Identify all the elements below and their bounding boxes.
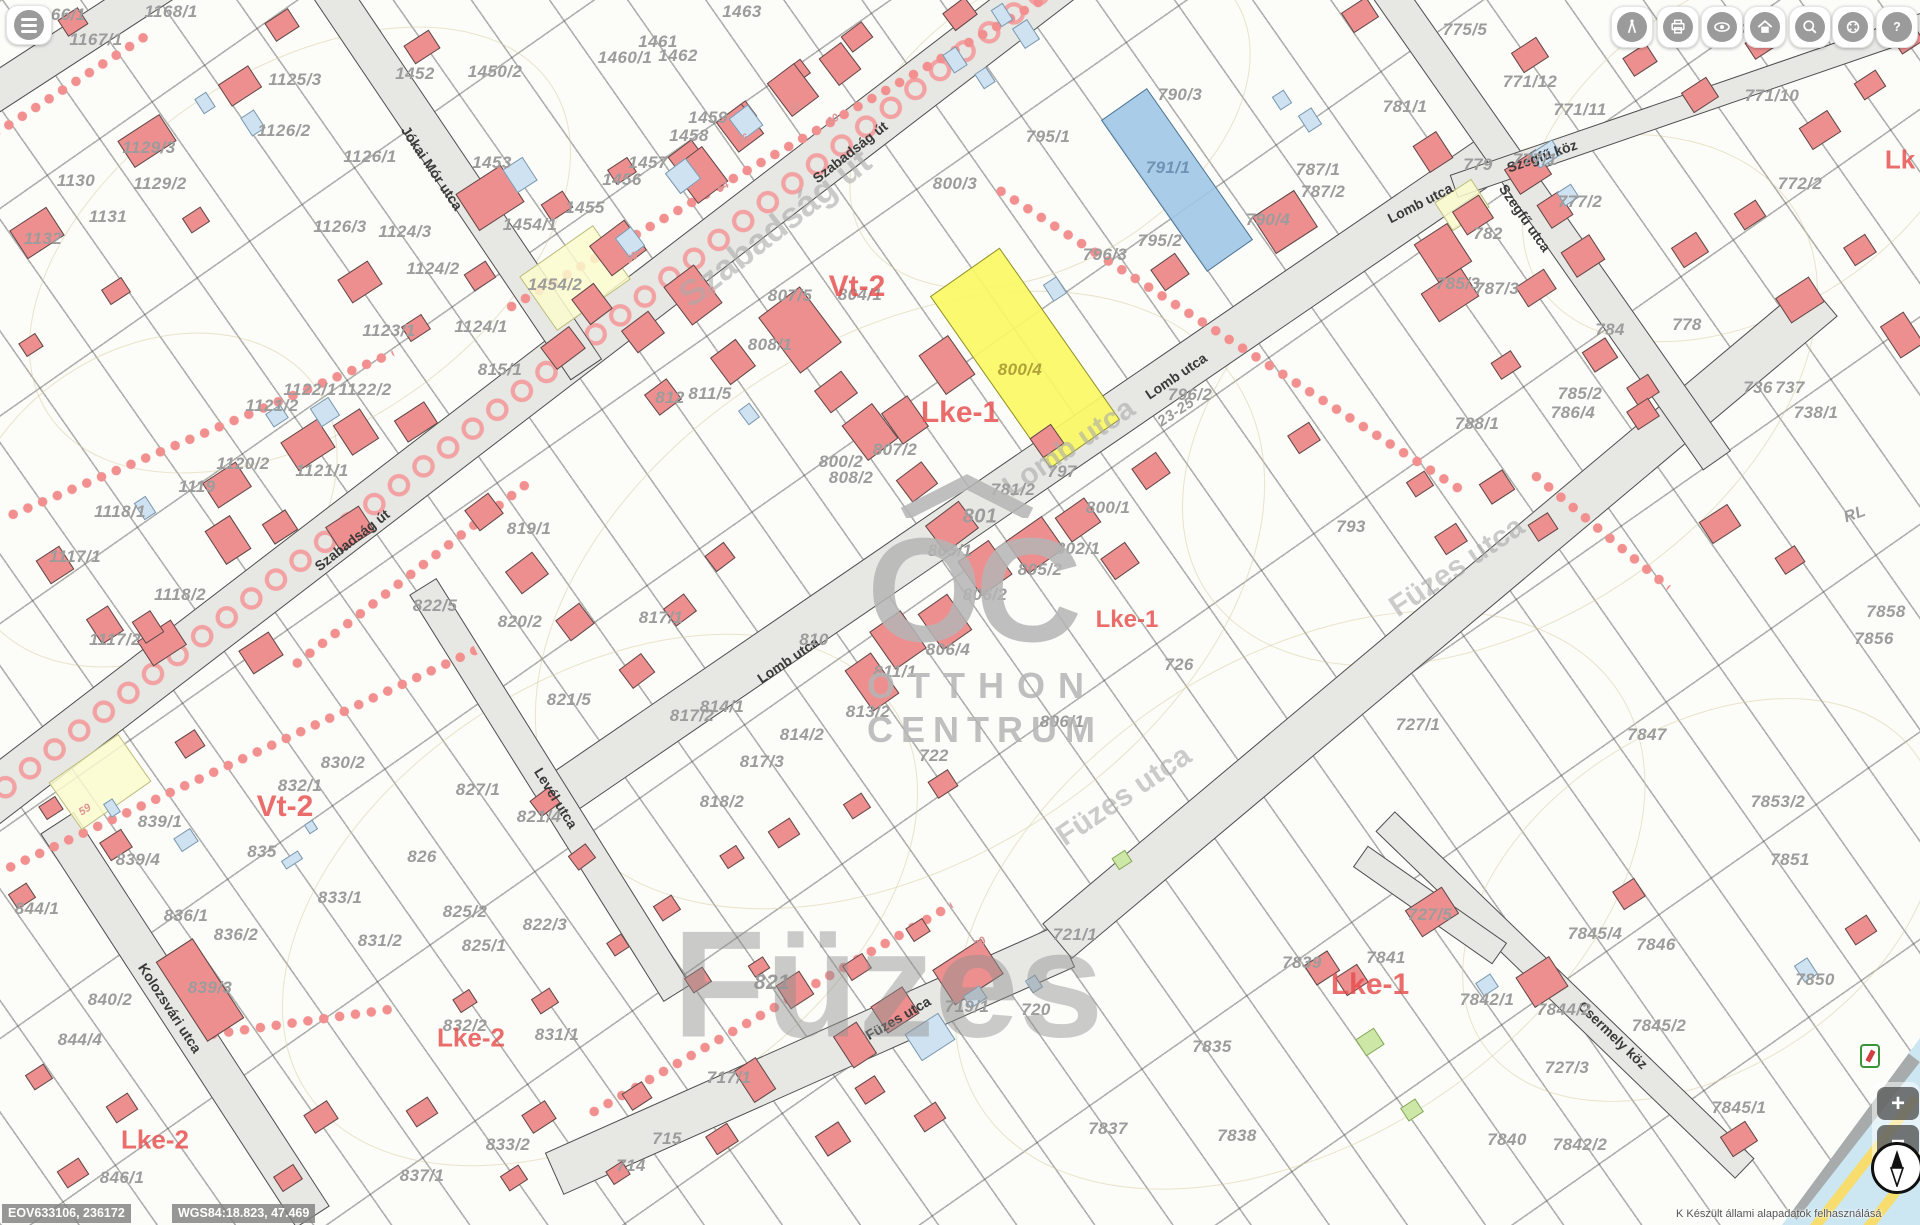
parcel-number: 781/2 (991, 480, 1036, 500)
view-button[interactable] (1701, 6, 1743, 48)
parcel-number: 825/2 (443, 902, 488, 922)
zoning-code-label: Lke-1 (1096, 606, 1159, 634)
menu-button[interactable] (6, 5, 52, 45)
parcel-number: 822/3 (523, 915, 568, 935)
wgs-coordinates: WGS84:18.823, 47.469 (172, 1204, 315, 1223)
parcel-number: 7845/2 (1632, 1016, 1686, 1036)
parcel-number: 1126/3 (313, 217, 366, 237)
building (1341, 0, 1379, 33)
zoning-code-label: Lke-1 (921, 396, 999, 430)
parcel-number: 726 (1164, 655, 1194, 675)
parcel-number: 785/2 (1558, 384, 1603, 404)
locate-button[interactable] (1832, 6, 1874, 48)
parcel-number: 7842/2 (1553, 1135, 1607, 1155)
basemap-logo-icon (1860, 1044, 1880, 1068)
parcel-number: 814/2 (780, 725, 825, 745)
parcel-number: 817/2 (670, 706, 715, 726)
parcel-number: 831/1 (535, 1025, 580, 1045)
parcel-number: 800/4 (998, 360, 1043, 380)
parcel-number: 1132 (24, 229, 62, 249)
parcel-number: 806/1 (1040, 712, 1085, 732)
parcel-number: 833/1 (318, 888, 363, 908)
parcel-number: 7850 (1795, 970, 1834, 990)
zoning-code-label: Lke-1 (1331, 968, 1409, 1002)
compass-needle-icon (1882, 1149, 1912, 1187)
parcel-number: 784 (1595, 320, 1625, 340)
parcel-number: 827/1 (456, 780, 501, 800)
question-icon: ? (1882, 12, 1912, 42)
parcel-number: 846/1 (100, 1168, 145, 1188)
parcel-number: 815/1 (478, 360, 523, 380)
building (264, 8, 299, 42)
parcel-number: 1463 (722, 2, 761, 22)
parcel-number: 7842/1 (1460, 990, 1514, 1010)
parcel-number: 800/3 (933, 174, 978, 194)
parcel-number: 737 (1775, 378, 1805, 398)
parcel-number: 839/3 (188, 978, 233, 998)
parcel-number: 821/4 (517, 807, 562, 827)
parcel-number: 720 (1021, 1000, 1051, 1020)
building (174, 729, 205, 759)
parcel-number: 836/2 (214, 925, 259, 945)
parcel-number: 1120/2 (216, 454, 269, 474)
parcel-number: 820/2 (498, 612, 543, 632)
parcel-number: 717/1 (707, 1068, 752, 1088)
parcel-number: 1453 (472, 153, 511, 173)
parcel-number: 775/5 (1443, 20, 1488, 40)
parcel-number: 1454/2 (528, 275, 582, 295)
parcel-number: 1125/3 (268, 70, 321, 90)
home-icon (1750, 12, 1780, 42)
parcel-number: 790/3 (1158, 85, 1203, 105)
svg-text:?: ? (1893, 20, 1901, 34)
zoning-code-label: Vt-2 (257, 790, 314, 824)
parcel-number: 1121/1 (295, 461, 348, 481)
parcel-number: 7835 (1192, 1037, 1231, 1057)
parcel-number: 807/2 (873, 440, 918, 460)
parcel-number: 797 (1047, 462, 1077, 482)
parcel-number: 1119 (179, 477, 216, 497)
parcel-number: 801 (963, 506, 998, 529)
parcel-number: 1126/2 (257, 121, 310, 141)
parcel-number: 1124/3 (378, 222, 431, 242)
parcel-number: 808/2 (829, 468, 874, 488)
parcel-number: 771/10 (1745, 86, 1799, 106)
crosshair-icon (1838, 12, 1868, 42)
parcel-number: 1131 (89, 207, 127, 227)
parcel-number: 714 (616, 1156, 646, 1176)
eov-coordinates: EOV633106, 236172 (2, 1204, 131, 1223)
parcel-number: 1124/2 (406, 259, 459, 279)
building (238, 631, 283, 674)
parcel-number: 802/1 (1056, 539, 1101, 559)
parcel-number: 727/5 (1408, 905, 1453, 925)
parcel-number: 7846 (1636, 935, 1675, 955)
measure-button[interactable] (1611, 6, 1653, 48)
building (815, 1121, 852, 1156)
parcel-number: 7841 (1366, 948, 1405, 968)
parcel-number: 1122/2 (338, 380, 391, 400)
parcel-number: 787/2 (1301, 182, 1346, 202)
parcel-number: 793 (1336, 517, 1366, 537)
printer-icon (1663, 12, 1693, 42)
parcel-number: 837/1 (400, 1166, 445, 1186)
parcel-number: 1130 (57, 171, 95, 191)
parcel-number: 1458 (669, 126, 708, 146)
hamburger-icon (14, 10, 44, 40)
parcel-number: 738/1 (1794, 403, 1839, 423)
compass-rose[interactable] (1871, 1142, 1920, 1194)
parcel-number: 782 (1473, 224, 1503, 244)
parcel-number: 1455 (565, 198, 604, 218)
parcel-number: 1117/2 (89, 630, 141, 650)
map-canvas[interactable]: Szabadság útLomb utcaFüzes utcaFüzes utc… (0, 0, 1920, 1225)
parcel-number: 833/2 (486, 1135, 531, 1155)
parcel-number: 840/2 (88, 990, 133, 1010)
parcel-number: 787/1 (1296, 160, 1341, 180)
parcel-number: 836/1 (164, 906, 209, 926)
parcel-number: 844/4 (58, 1030, 103, 1050)
parcel-number: 7851 (1770, 850, 1809, 870)
building (914, 1102, 947, 1133)
parcel-number: 1117/1 (49, 547, 101, 567)
parcel-number: 790/4 (1246, 210, 1291, 230)
parcel-number: 7840 (1487, 1130, 1526, 1150)
parcel-number: 811/5 (688, 384, 731, 404)
parcel-number: 1454/1 (503, 215, 557, 235)
parcel-number: 787/3 (1475, 279, 1520, 299)
parcel-number: 722 (919, 746, 949, 766)
print-button[interactable] (1657, 6, 1699, 48)
building (854, 1075, 885, 1105)
parcel-number: 819/1 (507, 519, 552, 539)
parcel-number: 805/1 (928, 541, 973, 561)
zoning-code-label: Lke-2 (121, 1125, 189, 1156)
parcel-number: 785/3 (1436, 274, 1481, 294)
parcel-number: 839/4 (116, 850, 161, 870)
parcel-number: 719/1 (945, 997, 990, 1017)
parcel-number: 791/1 (1146, 158, 1191, 178)
parcel-number: 1122/1 (283, 380, 336, 400)
parcel-number: 831/2 (358, 931, 403, 951)
help-button[interactable]: ? (1876, 6, 1918, 48)
outbuilding (1272, 89, 1292, 110)
building (1774, 545, 1805, 575)
parcel-number: 715 (652, 1129, 682, 1149)
parcel-number: 795/1 (1026, 127, 1071, 147)
parcel-number: 779 (1463, 155, 1493, 175)
parcel-number: 1456 (602, 170, 641, 190)
parcel-number: 1167/1 (69, 30, 122, 50)
parcel-number: 7839 (1282, 953, 1321, 973)
parcel-number: 7845/1 (1712, 1098, 1766, 1118)
map-app: Szabadság útLomb utcaFüzes utcaFüzes utc… (0, 0, 1920, 1225)
parcel-number: 805/2 (1018, 560, 1063, 580)
parcel-number: 830/2 (321, 753, 366, 773)
parcel-number: 835 (247, 842, 277, 862)
parcel-number: 1118/1 (94, 502, 146, 522)
parcel-number: 788/1 (1455, 414, 1500, 434)
parcel-number: 1168/1 (144, 2, 197, 22)
parcel-number: 821/5 (547, 690, 592, 710)
building (505, 552, 549, 595)
parcel-number: 811/1 (873, 662, 916, 682)
parcel-number: 822/5 (413, 596, 458, 616)
search-icon (1795, 12, 1825, 42)
parcel-number: 807/5 (768, 286, 813, 306)
parcel-number: 1452 (395, 64, 434, 84)
parcel-number: 844/1 (15, 899, 60, 919)
parcel-number: 813/2 (846, 702, 891, 722)
parcel-number: 7837 (1088, 1119, 1127, 1139)
parcel-number: 777/1 (1513, 150, 1558, 170)
parcel-number: 772/2 (1778, 174, 1823, 194)
parcel-number: 1124/1 (454, 317, 507, 337)
parcel-number: 736 (1743, 378, 1773, 398)
parcel-number: 727/1 (1396, 715, 1441, 735)
parcel-number: 7853/2 (1751, 792, 1805, 812)
parcel-number: 806/4 (926, 640, 971, 660)
home-button[interactable] (1744, 6, 1786, 48)
measure-icon (1617, 12, 1647, 42)
parcel-number: 817/3 (740, 752, 785, 772)
zoning-code-label: Lke-2 (437, 1023, 505, 1054)
parcel-number: 781/1 (1383, 97, 1428, 117)
zoning-code-label: Lk (1885, 145, 1915, 176)
parcel-number: 1450/2 (468, 62, 522, 82)
parcel-number: 825/1 (462, 936, 507, 956)
building (57, 1158, 90, 1189)
parcel-number: 1129/2 (133, 174, 186, 194)
parcel-number: 1118/2 (154, 585, 206, 605)
building (500, 1164, 528, 1191)
parcel-number: 7847 (1627, 725, 1666, 745)
parcel-number: 795/2 (1138, 231, 1183, 251)
parcel-number: 1459 (688, 108, 727, 128)
parcel-number: 1462 (658, 46, 697, 66)
parcel-number: 786/4 (1551, 403, 1596, 423)
parcel-number: 7856 (1854, 629, 1893, 649)
outbuilding (1298, 107, 1322, 132)
parcel-number: 1457 (628, 153, 667, 173)
building (106, 1093, 139, 1124)
parcel-number: 839/1 (138, 812, 183, 832)
parcel-number: RL (1842, 503, 1869, 527)
parcel-number: 1123/1 (362, 321, 415, 341)
parcel-number: 810 (799, 630, 829, 650)
zoom-in-button[interactable]: + (1877, 1087, 1919, 1120)
attribution-text: K Készült állami alapadatok felhasználás… (1676, 1208, 1881, 1220)
zoning-code-label: Vt-2 (829, 270, 886, 304)
building (1511, 37, 1549, 73)
parcel-number: 771/11 (1553, 100, 1606, 120)
search-button[interactable] (1789, 6, 1831, 48)
parcel-number: 721/1 (1053, 925, 1098, 945)
building (1880, 311, 1920, 358)
parcel-number: 7845/4 (1568, 924, 1622, 944)
parcel-number: 7844/2 (1537, 1000, 1591, 1020)
parcel-number: 806/2 (963, 585, 1008, 605)
parcel-number: 821 (754, 971, 790, 995)
parcel-number: 818/2 (700, 792, 745, 812)
parcel-number: 812 (655, 388, 685, 408)
parcel-number: 796/3 (1083, 245, 1128, 265)
eye-icon (1707, 12, 1737, 42)
parcel-number: 808/1 (748, 335, 793, 355)
parcel-number: 826 (407, 847, 437, 867)
building (25, 1063, 53, 1090)
parcel-number: 1129/3 (122, 138, 175, 158)
parcel-number: 771/12 (1503, 72, 1557, 92)
parcel-number: 7838 (1217, 1126, 1256, 1146)
parcel-number: 778 (1672, 315, 1702, 335)
parcel-number: 777/2 (1558, 192, 1603, 212)
outbuilding (281, 850, 303, 869)
parcel-number: 817/1 (639, 608, 684, 628)
parcel-number: 1126/1 (343, 147, 396, 167)
parcel-number: 7858 (1866, 602, 1905, 622)
parcel-number: 800/1 (1086, 498, 1131, 518)
parcel-number: 727/3 (1545, 1058, 1590, 1078)
